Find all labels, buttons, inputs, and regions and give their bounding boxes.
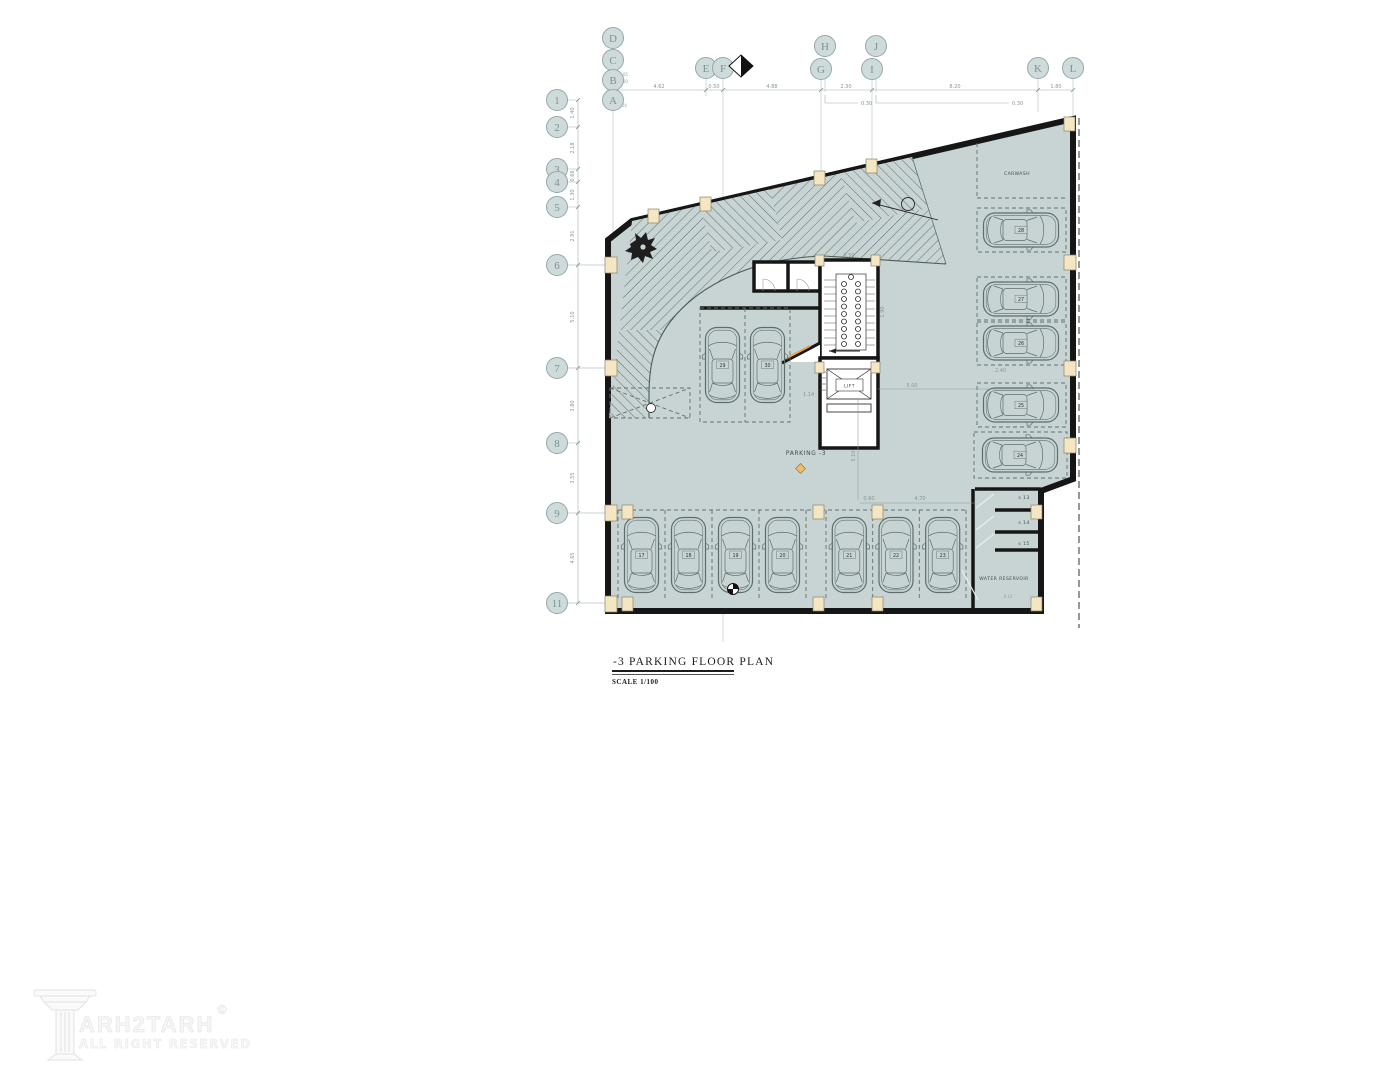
dim-left-1: 1.40: [570, 107, 576, 118]
dim-left-2: 2.18: [570, 142, 576, 153]
grid-bubble-label: I: [870, 64, 874, 76]
parking-area-label: PARKING -3: [786, 450, 826, 457]
floor-plan-canvas: 4.62 0.50 4.88 2.30 8.20 1.80 0.30 0.30 …: [0, 0, 1398, 1080]
grid-bubble-A: A: [603, 90, 624, 111]
stair-core: 2.50 1.90: [820, 253, 886, 358]
spot-number-27: 27: [1018, 297, 1024, 303]
spot-number-30: 30: [764, 363, 770, 369]
grid-bubble-label: 2: [554, 122, 560, 134]
dim-hall-width: 5.00: [906, 383, 917, 389]
grid-bubble-G: G: [811, 59, 832, 80]
grid-bubble-label: 8: [554, 438, 560, 450]
building: 2.50 1.90 LIFT 29: [605, 117, 1079, 628]
storage-label-s14: s 14: [1018, 520, 1029, 526]
dim-hall-height: 5.10: [851, 450, 857, 461]
watermark-brand: ARH2TARH: [79, 1012, 214, 1037]
dim-bottom-b: 4.70: [914, 496, 925, 502]
grid-bubble-1: 1: [547, 90, 568, 111]
dim-offset-1: 0.30: [861, 101, 872, 107]
spot-number-29: 29: [719, 363, 725, 369]
dim-top-1: 4.62: [653, 84, 664, 90]
dim-left-9: 4.65: [570, 552, 576, 563]
grid-bubble-5: 5: [547, 197, 568, 218]
spot-number-23: 23: [940, 553, 946, 559]
spot-number-18: 18: [685, 553, 691, 559]
dim-offset-2: 0.30: [1012, 101, 1023, 107]
dim-stair-side: 1.90: [880, 306, 886, 317]
grid-bubble-label: 7: [554, 363, 560, 375]
dim-left-7: 3.80: [570, 400, 576, 411]
spot-number-21: 21: [846, 553, 852, 559]
grid-bubble-label: L: [1070, 63, 1077, 75]
dim-top-3: 4.88: [766, 84, 777, 90]
ramp-marker-icon: [647, 404, 656, 413]
watermark: ARH2TARH © ALL RIGHT RESERVED: [34, 990, 252, 1060]
grid-bubble-9: 9: [547, 503, 568, 524]
dim-top-6: 1.80: [1050, 84, 1061, 90]
spot-number-20: 20: [779, 553, 785, 559]
grid-bubble-J: J: [866, 36, 887, 57]
grid-bubble-D: D: [603, 28, 624, 49]
dim-left-8: 3.55: [570, 472, 576, 483]
grid-bubble-K: K: [1028, 58, 1049, 79]
tree-icon-core: [640, 244, 645, 249]
grid-bubble-label: 4: [554, 177, 560, 189]
grid-bubble-6: 6: [547, 255, 568, 276]
storage-label-s13: s 13: [1018, 495, 1029, 501]
section-marker-icon: [728, 584, 739, 595]
grid-bubble-B: B: [603, 70, 624, 91]
water-reservoir-label: WATER RESERVOIR: [979, 576, 1029, 582]
spot-number-24: 24: [1017, 453, 1023, 459]
spot-number-26: 26: [1018, 341, 1024, 347]
grid-bubble-label: 1: [554, 95, 560, 107]
title-block: -3 PARKING FLOOR PLAN SCALE 1/100: [612, 656, 774, 686]
grid-bubble-11: 11: [547, 593, 568, 614]
lift-label: LIFT: [844, 384, 855, 390]
grid-bubble-label: K: [1034, 63, 1042, 75]
dim-left-4: 1.30: [570, 189, 576, 200]
dim-lobby-width: 1.14: [803, 392, 814, 398]
spot-number-22: 22: [893, 553, 899, 559]
spot-number-28: 28: [1018, 228, 1024, 234]
grid-bubble-label: B: [609, 75, 616, 87]
watermark-tagline: ALL RIGHT RESERVED: [79, 1037, 252, 1051]
plan-title: -3 PARKING FLOOR PLAN: [613, 656, 774, 668]
carwash-label: CARWASH: [1004, 171, 1030, 177]
grid-bubble-label: J: [874, 41, 879, 53]
dim-left-6: 5.10: [570, 311, 576, 322]
grid-bubble-label: H: [821, 41, 829, 53]
dim-left-5: 2.91: [570, 230, 576, 241]
grid-bubble-label: F: [720, 63, 726, 75]
dim-bottom-a: 0.60: [863, 496, 874, 502]
grid-bubble-8: 8: [547, 433, 568, 454]
lift-core: LIFT: [820, 358, 878, 448]
grid-bubble-label: G: [817, 64, 825, 76]
dim-stair-width: 2.50: [843, 253, 854, 259]
grid-bubble-C: C: [603, 50, 624, 71]
grid-bubble-L: L: [1063, 58, 1084, 79]
grid-bubble-label: D: [609, 33, 617, 45]
dim-reservoir: 8.10: [1004, 594, 1013, 599]
dim-left-3: 0.66: [570, 170, 576, 181]
dim-spot-gap: 2.40: [995, 368, 1006, 374]
dim-top-2: 0.50: [708, 84, 719, 90]
grid-bubble-label: 5: [554, 202, 560, 214]
watermark-copyright: ©: [216, 1003, 230, 1017]
grid-bubble-label: A: [609, 95, 617, 107]
dim-top-4: 2.30: [840, 84, 851, 90]
grid-bubble-label: 11: [552, 598, 563, 610]
grid-bubble-H: H: [815, 36, 836, 57]
grid-bubble-I: I: [862, 59, 883, 80]
plan-scale: SCALE 1/100: [612, 678, 659, 686]
north-arrow-icon: [729, 55, 753, 77]
grid-bubble-label: 6: [554, 260, 560, 272]
spot-number-17: 17: [638, 553, 644, 559]
grid-bubble-label: 9: [554, 508, 560, 520]
grid-bubble-label: C: [609, 55, 616, 67]
spot-number-25: 25: [1018, 403, 1024, 409]
grid-bubble-F: F: [713, 58, 734, 79]
grid-bubble-2: 2: [547, 117, 568, 138]
grid-bubble-label: E: [703, 63, 710, 75]
dim-top-5: 8.20: [949, 84, 960, 90]
spot-number-19: 19: [732, 553, 738, 559]
grid-bubble-7: 7: [547, 358, 568, 379]
grid-bubble-4: 4: [547, 172, 568, 193]
storage-label-s15: s 15: [1018, 541, 1029, 547]
